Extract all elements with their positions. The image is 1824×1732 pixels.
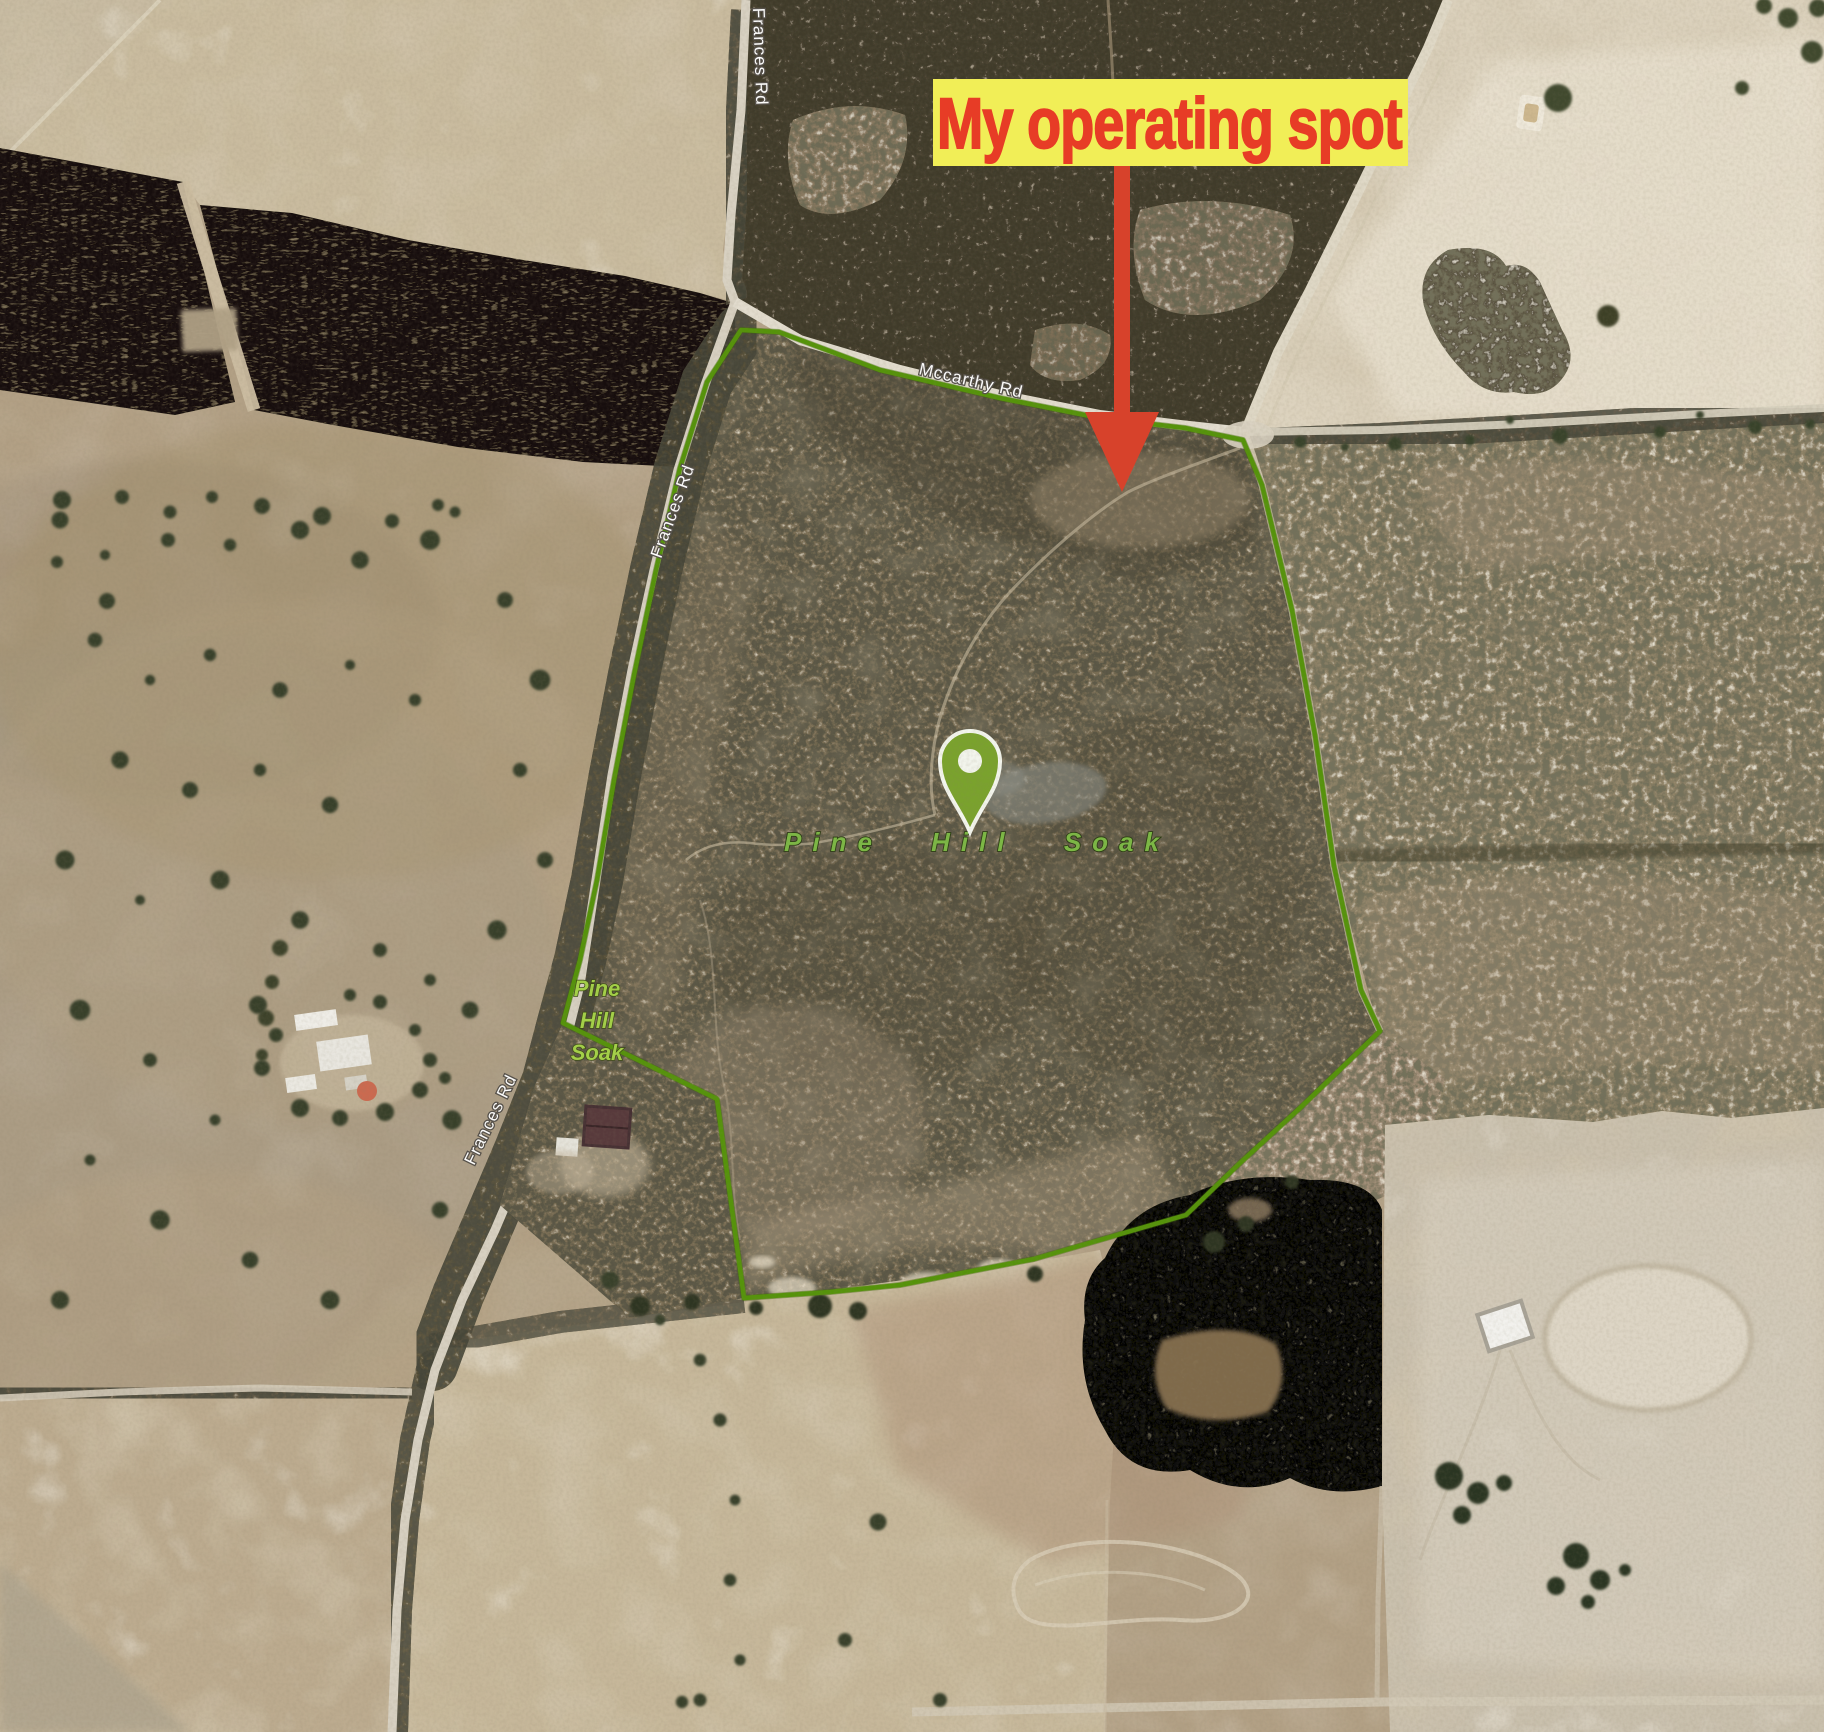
svg-text:My operating spot: My operating spot bbox=[937, 83, 1402, 163]
